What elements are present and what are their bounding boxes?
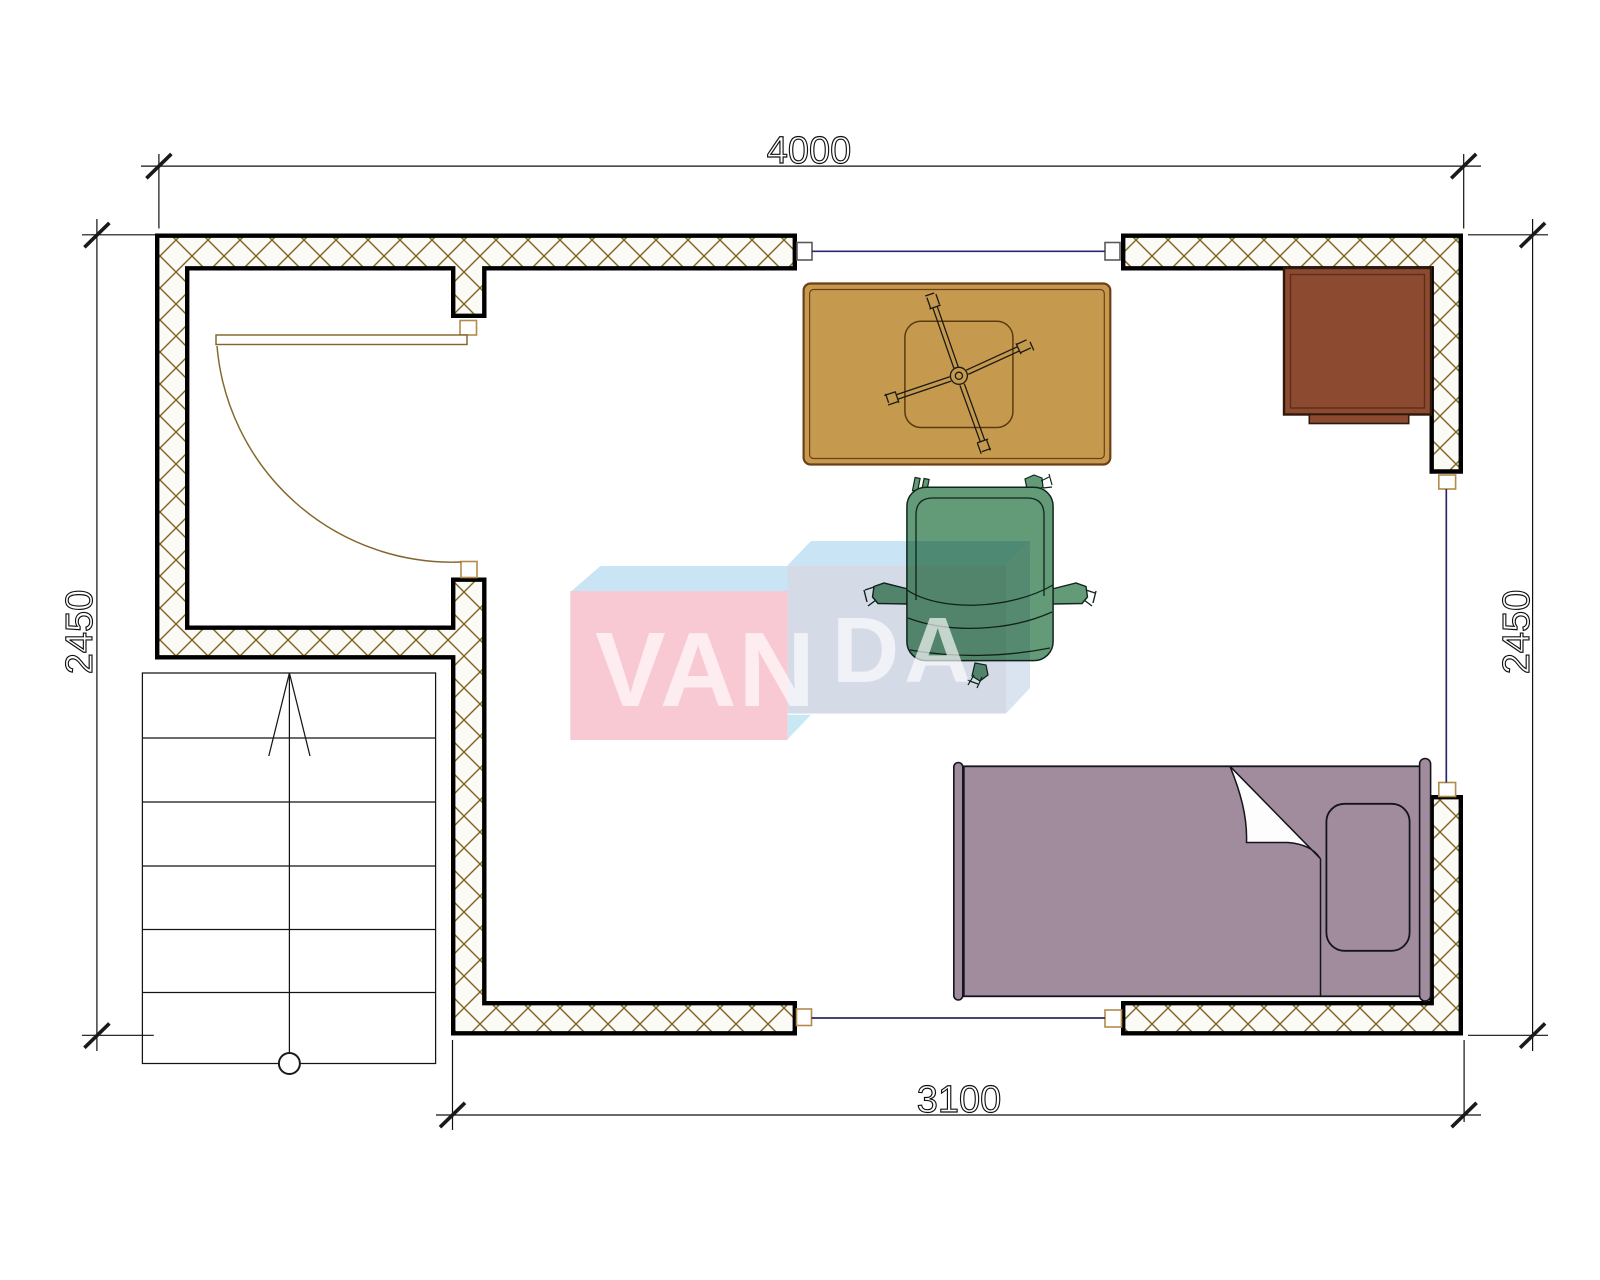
- svg-text:2450: 2450: [59, 590, 101, 675]
- svg-text:VAN: VAN: [595, 611, 817, 729]
- svg-text:3100: 3100: [917, 1079, 1002, 1121]
- svg-text:DA: DA: [832, 598, 976, 702]
- svg-text:4000: 4000: [767, 130, 852, 172]
- svg-text:2450: 2450: [1496, 590, 1538, 675]
